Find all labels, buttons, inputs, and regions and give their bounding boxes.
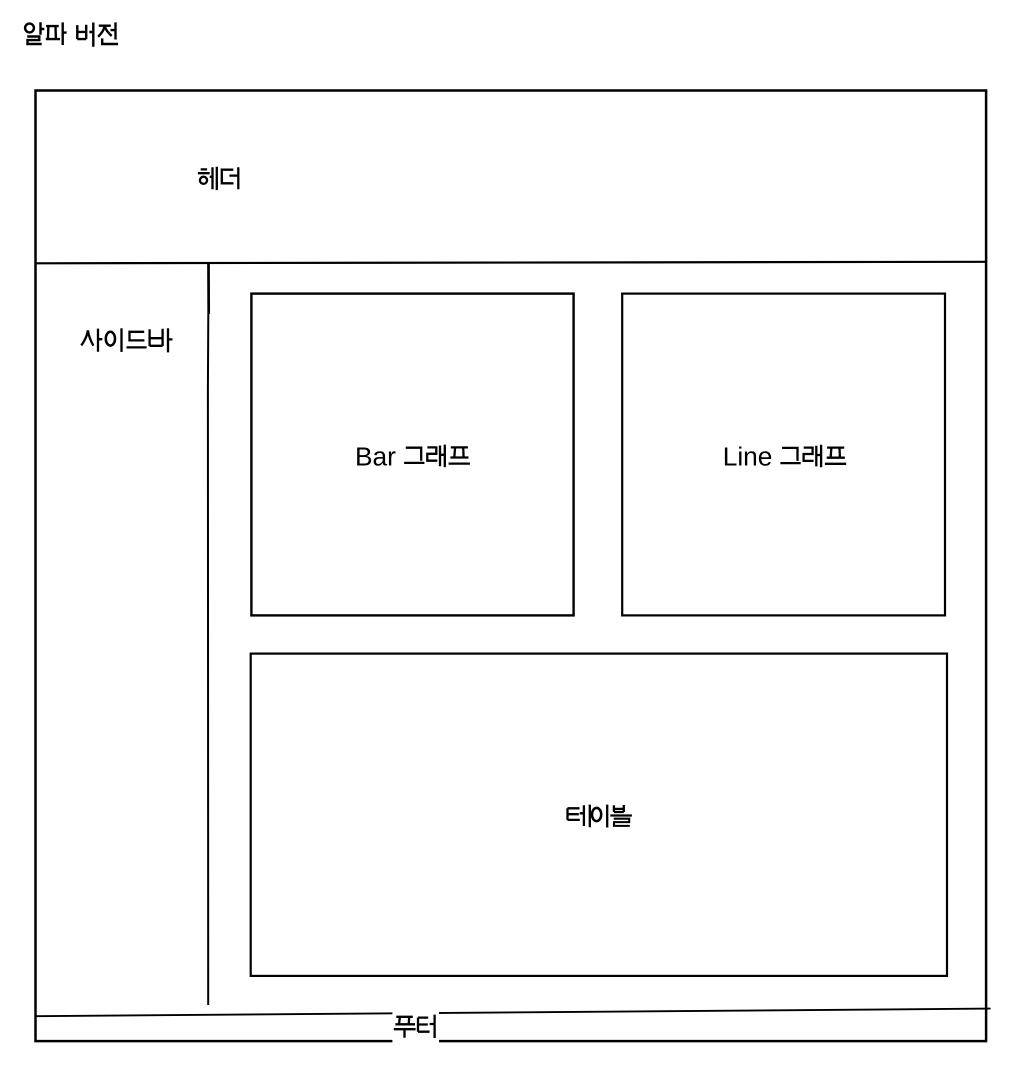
svg-text:Line: Line	[723, 442, 773, 472]
svg-text:Bar: Bar	[355, 441, 396, 471]
